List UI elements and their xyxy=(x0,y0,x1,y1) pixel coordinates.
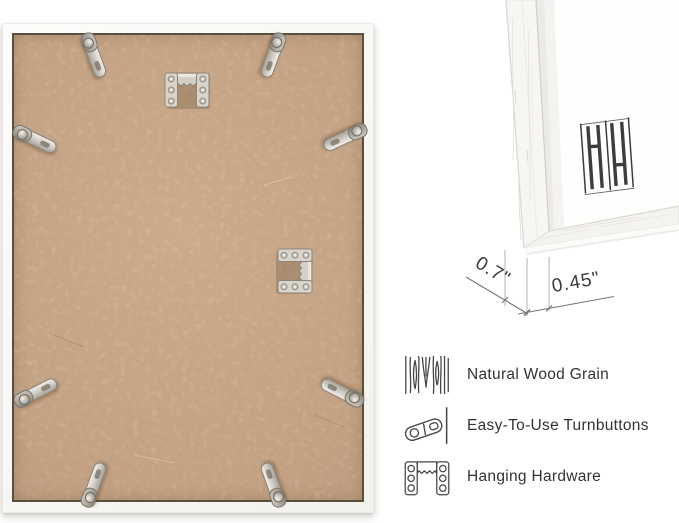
feature-label: Natural Wood Grain xyxy=(467,366,609,384)
dimension-annotation: 0.7" 0.45" xyxy=(466,250,614,316)
feature-item: Hanging Hardware xyxy=(402,452,679,502)
turnbutton-icon xyxy=(402,402,452,450)
feature-label: Easy-To-Use Turnbuttons xyxy=(467,417,649,435)
frame-back-view xyxy=(2,23,374,513)
feature-item: Natural Wood Grain xyxy=(402,350,679,400)
hanging-hardware-top xyxy=(164,71,210,109)
wood-grain-icon xyxy=(402,351,452,399)
hanging-hardware-middle xyxy=(276,248,314,294)
hanging-hardware-icon xyxy=(402,453,452,501)
feature-label: Hanging Hardware xyxy=(467,468,601,486)
face-width-dimension-label: 0.45" xyxy=(550,268,602,297)
feature-list: Natural Wood Grain Easy-To-Use Turnbutto… xyxy=(402,350,679,503)
frame-corner-closeup: 0.7" 0.45" xyxy=(440,0,679,335)
hanging-hardware-bracket xyxy=(276,248,314,294)
feature-item: Easy-To-Use Turnbuttons xyxy=(402,401,679,451)
product-listing-image: 0.7" 0.45" xyxy=(0,0,679,523)
